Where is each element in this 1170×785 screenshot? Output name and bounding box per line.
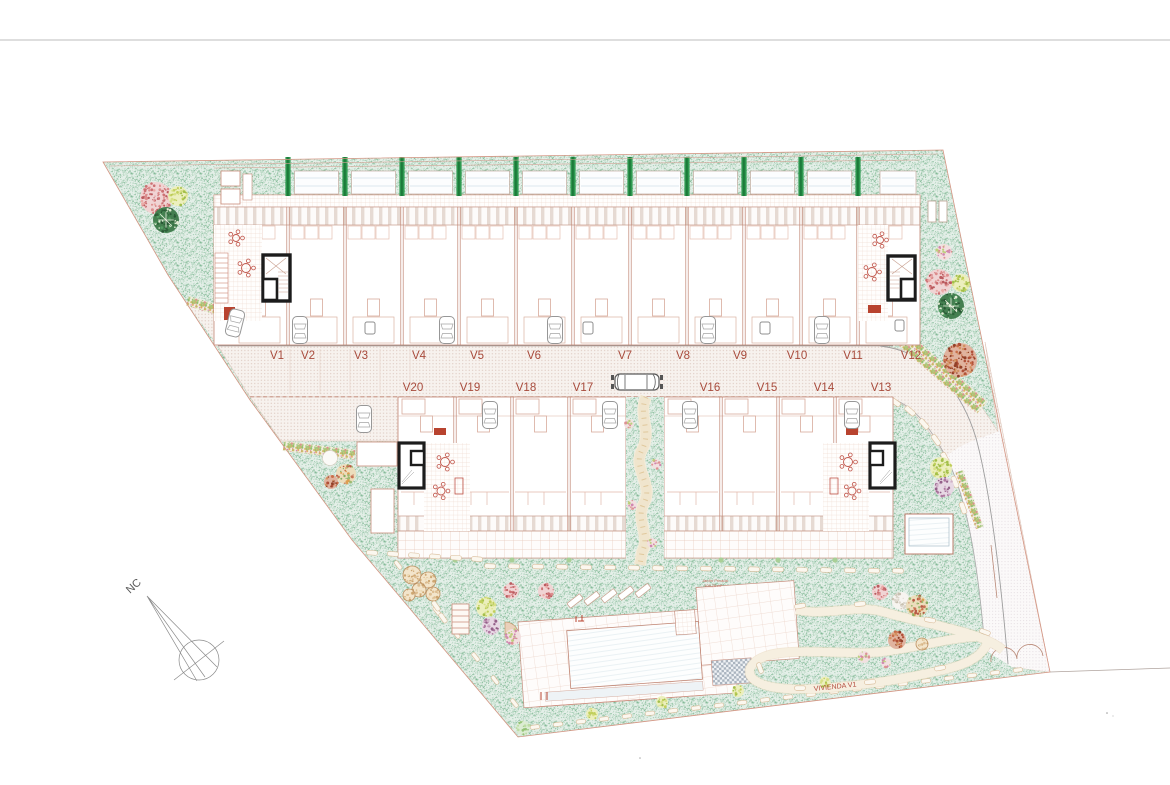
svg-text:V12: V12: [901, 350, 921, 362]
svg-text:V8: V8: [676, 350, 690, 362]
svg-text:V4: V4: [412, 350, 427, 362]
svg-text:V17: V17: [573, 382, 593, 394]
svg-text:V2: V2: [301, 350, 315, 362]
svg-text:V1: V1: [270, 350, 284, 362]
svg-text:V5: V5: [470, 350, 484, 362]
svg-text:V3: V3: [354, 350, 368, 362]
svg-text:V16: V16: [700, 382, 720, 394]
svg-text:V19: V19: [460, 382, 480, 394]
svg-text:V15: V15: [757, 382, 777, 394]
svg-text:V20: V20: [403, 382, 423, 394]
svg-text:V11: V11: [843, 350, 863, 362]
svg-text:V18: V18: [516, 382, 536, 394]
svg-text:V6: V6: [527, 350, 541, 362]
svg-text:V10: V10: [787, 350, 807, 362]
svg-text:V14: V14: [814, 382, 835, 394]
svg-text:105.70 m²: 105.70 m²: [704, 583, 723, 588]
svg-text:V7: V7: [618, 350, 632, 362]
svg-text:V13: V13: [871, 382, 891, 394]
svg-text:V9: V9: [733, 350, 747, 362]
